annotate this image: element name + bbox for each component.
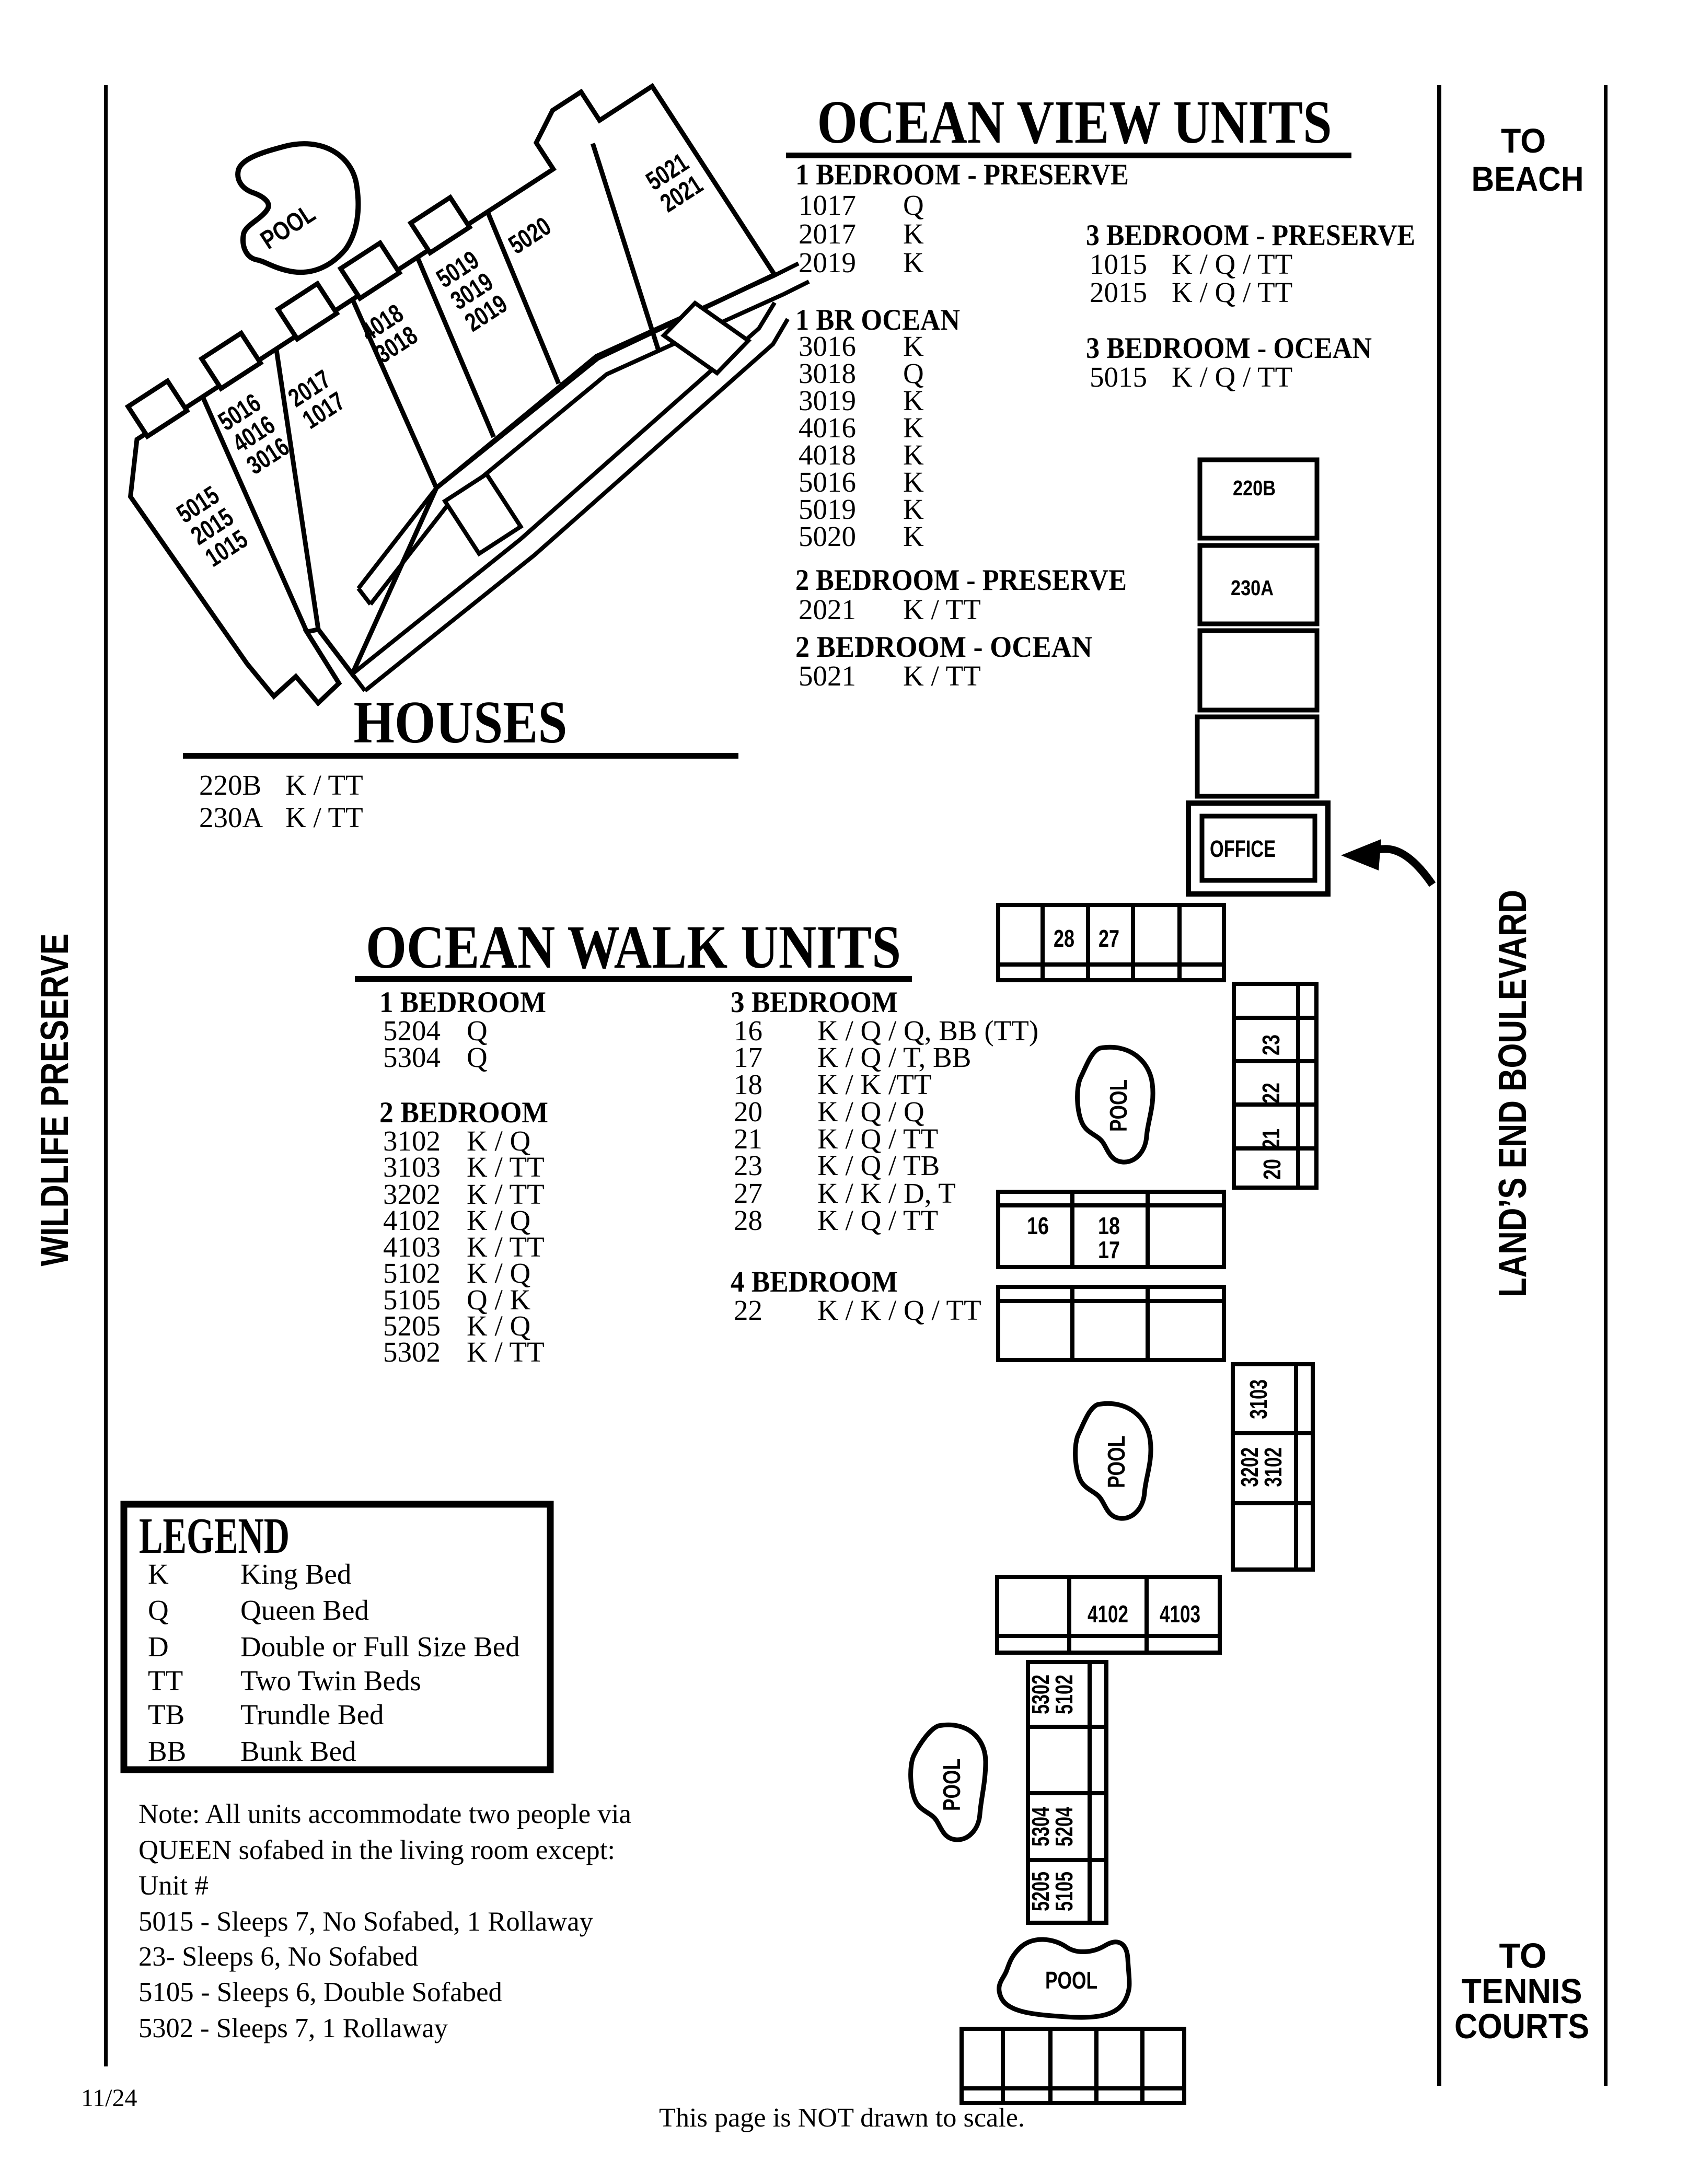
svg-text:11/24: 11/24 [81, 2084, 137, 2112]
svg-text:This page is NOT drawn to scal: This page is NOT drawn to scale. [659, 2103, 1025, 2133]
svg-text:27: 27 [1099, 925, 1119, 952]
svg-text:2 BEDROOM: 2 BEDROOM [379, 1096, 548, 1129]
svg-text:OCEAN WALK UNITS: OCEAN WALK UNITS [366, 913, 901, 981]
svg-text:5302 - Sleeps 7, 1 Rollaway: 5302 - Sleeps 7, 1 Rollaway [138, 2013, 448, 2043]
svg-text:18: 18 [1098, 1212, 1120, 1239]
svg-text:2 BEDROOM - PRESERVE: 2 BEDROOM - PRESERVE [795, 564, 1127, 597]
svg-text:23- Sleeps 6, No Sofabed: 23- Sleeps 6, No Sofabed [138, 1942, 418, 1972]
svg-text:Note: All units accommodate tw: Note: All units accommodate two people v… [138, 1799, 631, 1829]
svg-text:QUEEN sofabed in the living ro: QUEEN sofabed in the living room except: [138, 1835, 615, 1865]
svg-text:5105: 5105 [1050, 1872, 1078, 1911]
svg-text:22: 22 [1257, 1083, 1285, 1103]
svg-text:WILDLIFE PRESERVE: WILDLIFE PRESERVE [32, 934, 76, 1267]
svg-text:28: 28 [1054, 925, 1074, 952]
svg-text:230A: 230A [1231, 576, 1274, 600]
svg-text:2 BEDROOM - OCEAN: 2 BEDROOM - OCEAN [795, 631, 1092, 664]
svg-text:Unit #: Unit # [138, 1871, 209, 1901]
svg-text:BBBunk Bed: BBBunk Bed [148, 1735, 356, 1767]
svg-text:3 BEDROOM - OCEAN: 3 BEDROOM - OCEAN [1086, 332, 1372, 365]
svg-text:HOUSES: HOUSES [354, 689, 568, 756]
svg-text:5204: 5204 [1050, 1807, 1078, 1846]
svg-text:3 BEDROOM - PRESERVE: 3 BEDROOM - PRESERVE [1086, 219, 1415, 252]
svg-text:5015 - Sleeps 7, No Sofabed, 1: 5015 - Sleeps 7, No Sofabed, 1 Rollaway [138, 1907, 593, 1937]
svg-text:1 BEDROOM: 1 BEDROOM [379, 986, 546, 1019]
svg-text:POOL: POOL [1105, 1079, 1132, 1132]
svg-text:20: 20 [1258, 1159, 1286, 1180]
svg-text:3 BEDROOM: 3 BEDROOM [731, 986, 898, 1019]
svg-text:4102: 4102 [1088, 1600, 1128, 1628]
svg-text:3102: 3102 [1259, 1447, 1287, 1487]
svg-text:TO: TO [1499, 1936, 1547, 1976]
svg-text:POOL: POOL [938, 1759, 965, 1811]
svg-text:23: 23 [1257, 1035, 1285, 1055]
svg-text:5304Q: 5304Q [383, 1041, 488, 1073]
svg-text:5105 - Sleeps 6, Double Sofabe: 5105 - Sleeps 6, Double Sofabed [138, 1977, 502, 2007]
svg-text:17: 17 [1098, 1236, 1120, 1263]
svg-text:COURTS: COURTS [1454, 2007, 1589, 2046]
svg-text:POOL: POOL [1045, 1967, 1097, 1994]
svg-text:5015K / Q / TT: 5015K / Q / TT [1090, 361, 1292, 393]
svg-text:BEACH: BEACH [1472, 159, 1584, 198]
svg-text:TO: TO [1501, 121, 1546, 160]
svg-text:2015K / Q / TT: 2015K / Q / TT [1090, 276, 1292, 308]
svg-text:21: 21 [1257, 1129, 1285, 1149]
svg-text:220B: 220B [1233, 476, 1276, 500]
svg-text:1015K / Q / TT: 1015K / Q / TT [1090, 248, 1292, 280]
svg-text:LEGEND: LEGEND [139, 1508, 290, 1564]
svg-text:4103: 4103 [1160, 1600, 1200, 1628]
svg-text:5102: 5102 [1050, 1675, 1078, 1714]
svg-text:OCEAN VIEW UNITS: OCEAN VIEW UNITS [817, 88, 1332, 156]
svg-text:TBTrundle Bed: TBTrundle Bed [148, 1699, 384, 1730]
svg-text:3103: 3103 [1245, 1379, 1272, 1419]
svg-text:POOL: POOL [1103, 1436, 1130, 1488]
svg-text:TENNIS: TENNIS [1462, 1972, 1582, 2011]
svg-text:4 BEDROOM: 4 BEDROOM [731, 1265, 898, 1298]
svg-text:16: 16 [1027, 1212, 1049, 1239]
svg-text:OFFICE: OFFICE [1210, 835, 1276, 862]
svg-text:LAND’S END BOULEVARD: LAND’S END BOULEVARD [1490, 890, 1534, 1297]
svg-text:1 BEDROOM - PRESERVE: 1 BEDROOM - PRESERVE [795, 158, 1129, 191]
